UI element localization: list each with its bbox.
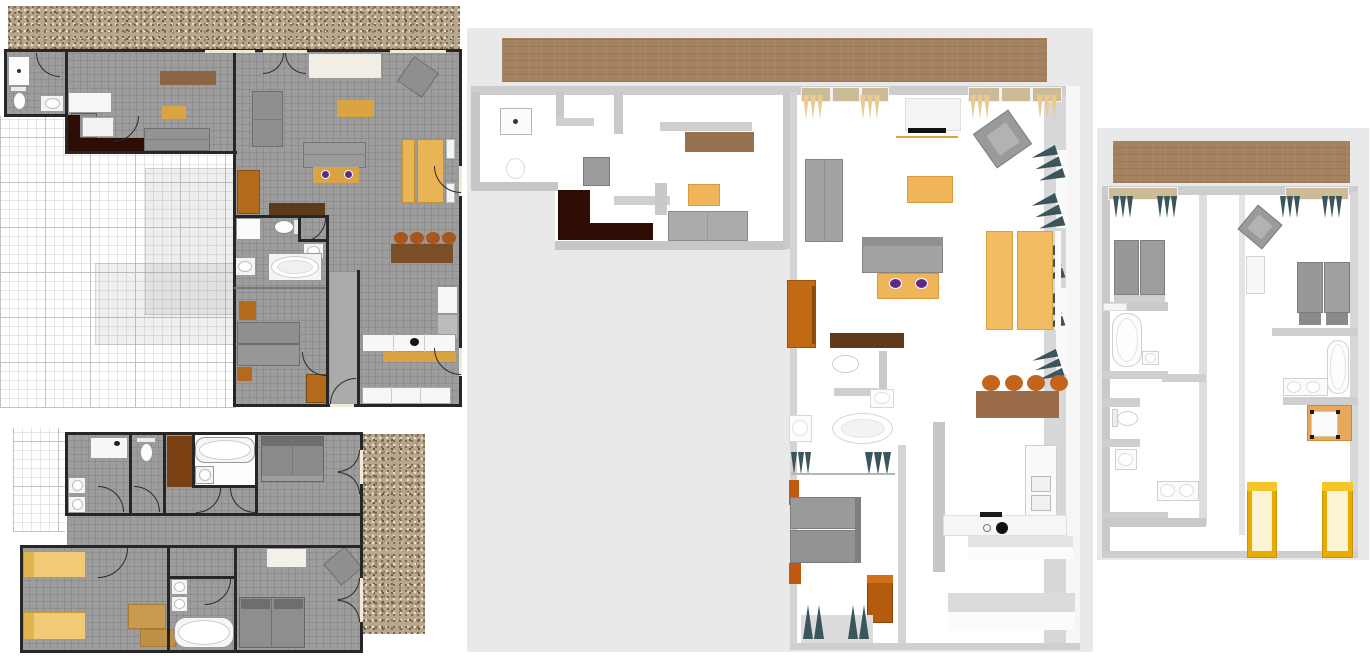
bed-gold-top xyxy=(1247,482,1277,491)
wall-bottom xyxy=(1102,551,1358,558)
double-sink-basin xyxy=(1306,381,1320,393)
bed-base xyxy=(1114,295,1165,303)
curtain-teal-fold xyxy=(1280,196,1286,218)
curtain-teal xyxy=(1322,196,1346,218)
wall-band xyxy=(1283,397,1358,405)
bed-gold-inner xyxy=(1252,489,1272,551)
bed-mattress xyxy=(1297,262,1323,313)
curtain-teal-fold xyxy=(1322,196,1328,218)
curtain-teal-fold xyxy=(1164,196,1170,218)
desk-inset xyxy=(1311,411,1338,437)
wall-band xyxy=(1102,518,1206,527)
deck xyxy=(1113,141,1350,183)
bed-mattress xyxy=(1324,262,1350,313)
bed-foot xyxy=(1299,313,1321,325)
shelf-white xyxy=(1103,303,1127,311)
curtain-teal-fold xyxy=(1336,196,1342,218)
curtain-teal-fold xyxy=(1171,196,1177,218)
desk-dot xyxy=(1310,435,1314,439)
bed-foot xyxy=(1326,313,1348,325)
bed-gold-inner xyxy=(1327,489,1348,551)
curtain-teal-fold xyxy=(1329,196,1335,218)
curtain-teal xyxy=(1113,196,1138,218)
wall-band xyxy=(1102,439,1140,447)
wall-band xyxy=(1102,398,1140,407)
wall-band xyxy=(1102,371,1168,379)
double-sink-basin xyxy=(1160,484,1175,497)
sink-3d-basin xyxy=(1118,453,1133,466)
wall-band xyxy=(1272,328,1358,336)
bathtub-3d-inner xyxy=(1116,318,1138,362)
plan-3d-level-2 xyxy=(0,0,1370,656)
curtain-teal-fold xyxy=(1127,196,1133,218)
curtain-teal-fold xyxy=(1120,196,1126,218)
sink-3d-basin xyxy=(1145,353,1156,363)
wall-band xyxy=(1162,374,1206,382)
curtain-teal-fold xyxy=(1157,196,1163,218)
curtain-teal-fold xyxy=(1287,196,1293,218)
cabinet-white xyxy=(1246,256,1265,294)
bathtub-3d-inner xyxy=(1330,344,1346,390)
bed-gold-top xyxy=(1322,482,1353,491)
desk-dot xyxy=(1336,410,1340,414)
bed-mattress xyxy=(1140,240,1165,295)
desk-dot xyxy=(1336,435,1340,439)
wall-corridor-left xyxy=(1199,195,1207,525)
curtain-teal-fold xyxy=(1294,196,1300,218)
desk-dot xyxy=(1310,410,1314,414)
wall-corridor-right xyxy=(1239,195,1245,535)
curtain-teal xyxy=(1280,196,1304,218)
curtain-teal-fold xyxy=(1113,196,1119,218)
curtain-teal xyxy=(1157,196,1182,218)
bed-mattress xyxy=(1114,240,1139,295)
floor-plan-sheet xyxy=(0,0,1370,656)
toilet-3d xyxy=(1117,411,1138,426)
double-sink-basin xyxy=(1287,381,1301,393)
double-sink-basin xyxy=(1179,484,1194,497)
